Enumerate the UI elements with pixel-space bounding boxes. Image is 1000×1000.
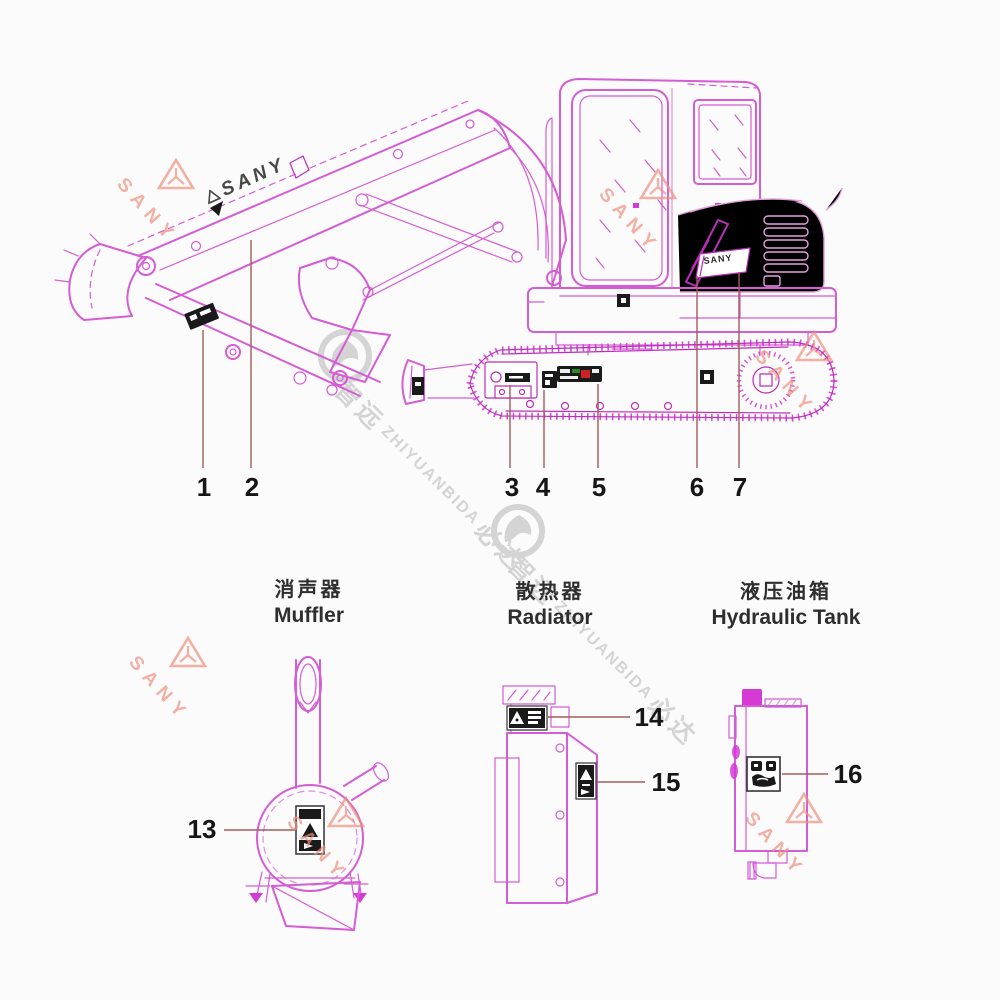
sany-logo-mark-icon xyxy=(203,187,221,205)
callout-number-14: 14 xyxy=(633,703,665,731)
boom-sany-decal: SANY xyxy=(202,144,311,209)
callout-number-2: 2 xyxy=(236,473,268,501)
callout-number-13: 13 xyxy=(186,815,218,843)
callout-number-7: 7 xyxy=(724,473,756,501)
boom-decal-text: SANY xyxy=(218,154,290,202)
hydraulic-tank-title-en: Hydraulic Tank xyxy=(701,605,871,631)
callout-number-5: 5 xyxy=(583,473,615,501)
callout-number-4: 4 xyxy=(527,473,559,501)
callout-number-16: 16 xyxy=(832,760,864,788)
muffler-title-zh: 消声器 xyxy=(229,578,389,603)
callout-number-1: 1 xyxy=(188,473,220,501)
parts-diagram-page: 智远 ZHIYUANBIDA 必达 智远 ZHIYUANBIDA 必达 xyxy=(0,0,1000,1000)
radiator-title-zh: 散热器 xyxy=(470,580,630,605)
radiator-title-en: Radiator xyxy=(470,605,630,631)
section-title-hydraulic-tank: 液压油箱 Hydraulic Tank xyxy=(701,580,871,631)
muffler-title-en: Muffler xyxy=(229,603,389,629)
callout-number-6: 6 xyxy=(681,473,713,501)
hydraulic-tank-title-zh: 液压油箱 xyxy=(701,580,871,605)
callout-number-3: 3 xyxy=(496,473,528,501)
label-layer: SANY SANY 1 2 3 4 5 6 7 消声器 Muffler 散热器 … xyxy=(0,0,1000,1000)
callout-number-15: 15 xyxy=(650,768,682,796)
section-title-muffler: 消声器 Muffler xyxy=(229,578,389,629)
section-title-radiator: 散热器 Radiator xyxy=(470,580,630,631)
engine-sany-decal-text: SANY xyxy=(703,250,750,266)
